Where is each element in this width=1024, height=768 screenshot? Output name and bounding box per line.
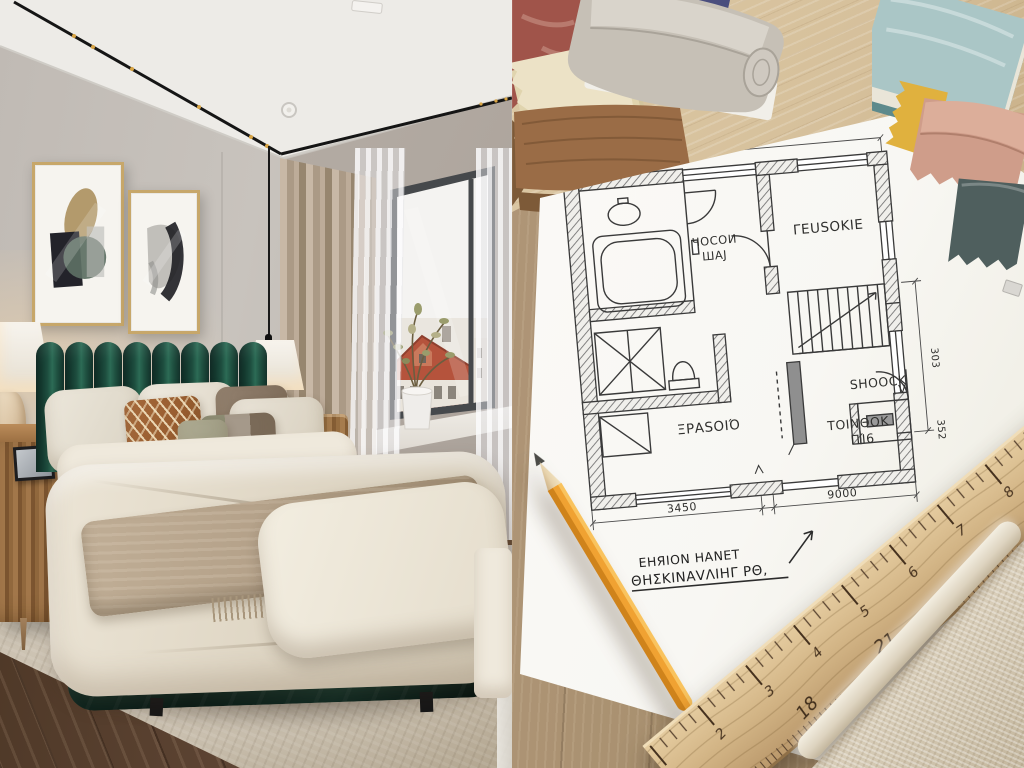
room-label-bottom-right-1: ΤΟΙΝΘΟΚ [826,413,890,433]
sheet-drape-right [474,548,512,698]
wall-molding-line [221,152,223,347]
abstract-art-left [44,174,112,314]
floor-plan-desk-photo: 080 ЧОСОИ ШАЈ ΓΕUSΟΚΙΕ SHOOCK V ΞΡΑSΟΙΌ … [512,0,1024,768]
bed-foot [420,692,434,712]
panel-seam [511,0,513,768]
ceiling [0,0,512,172]
room-label-living: ΓΕUSΟΚΙΕ [792,216,864,238]
ceiling-spot [282,103,296,117]
dim-right-lower: 352 [934,419,947,440]
pendant-cord [268,146,270,336]
fabric-swatches-right [872,0,1024,300]
grey-card [1003,280,1023,297]
art-frame-left [32,162,124,326]
dim-right-upper: 303 [928,347,941,368]
pencil-tip [530,450,545,466]
dim-bottom-right: 9000 [827,486,858,502]
room-label-bath-2: ШАЈ [702,247,728,263]
room-label-bottom-left: ΞΡΑSΟΙΌ [676,417,741,438]
swatch-darkteal [944,173,1024,274]
room-label-bath-1: ЧОСОИ [691,232,737,250]
abstract-art-right [140,202,188,322]
bedroom-photo [0,0,512,768]
closet-mark: V [898,382,907,396]
ceiling-plane [0,0,512,158]
bed-foot [150,698,164,717]
plant-pot [402,387,432,429]
art-frame-right [128,190,200,334]
dim-bottom-left: 3450 [666,500,697,516]
split-photo: 080 ЧОСОИ ШАЈ ΓΕUSΟΚΙΕ SHOOCK V ΞΡΑSΟΙΌ … [0,0,1024,768]
room-label-bottom-right-2: ΠΊ6 [850,430,875,447]
